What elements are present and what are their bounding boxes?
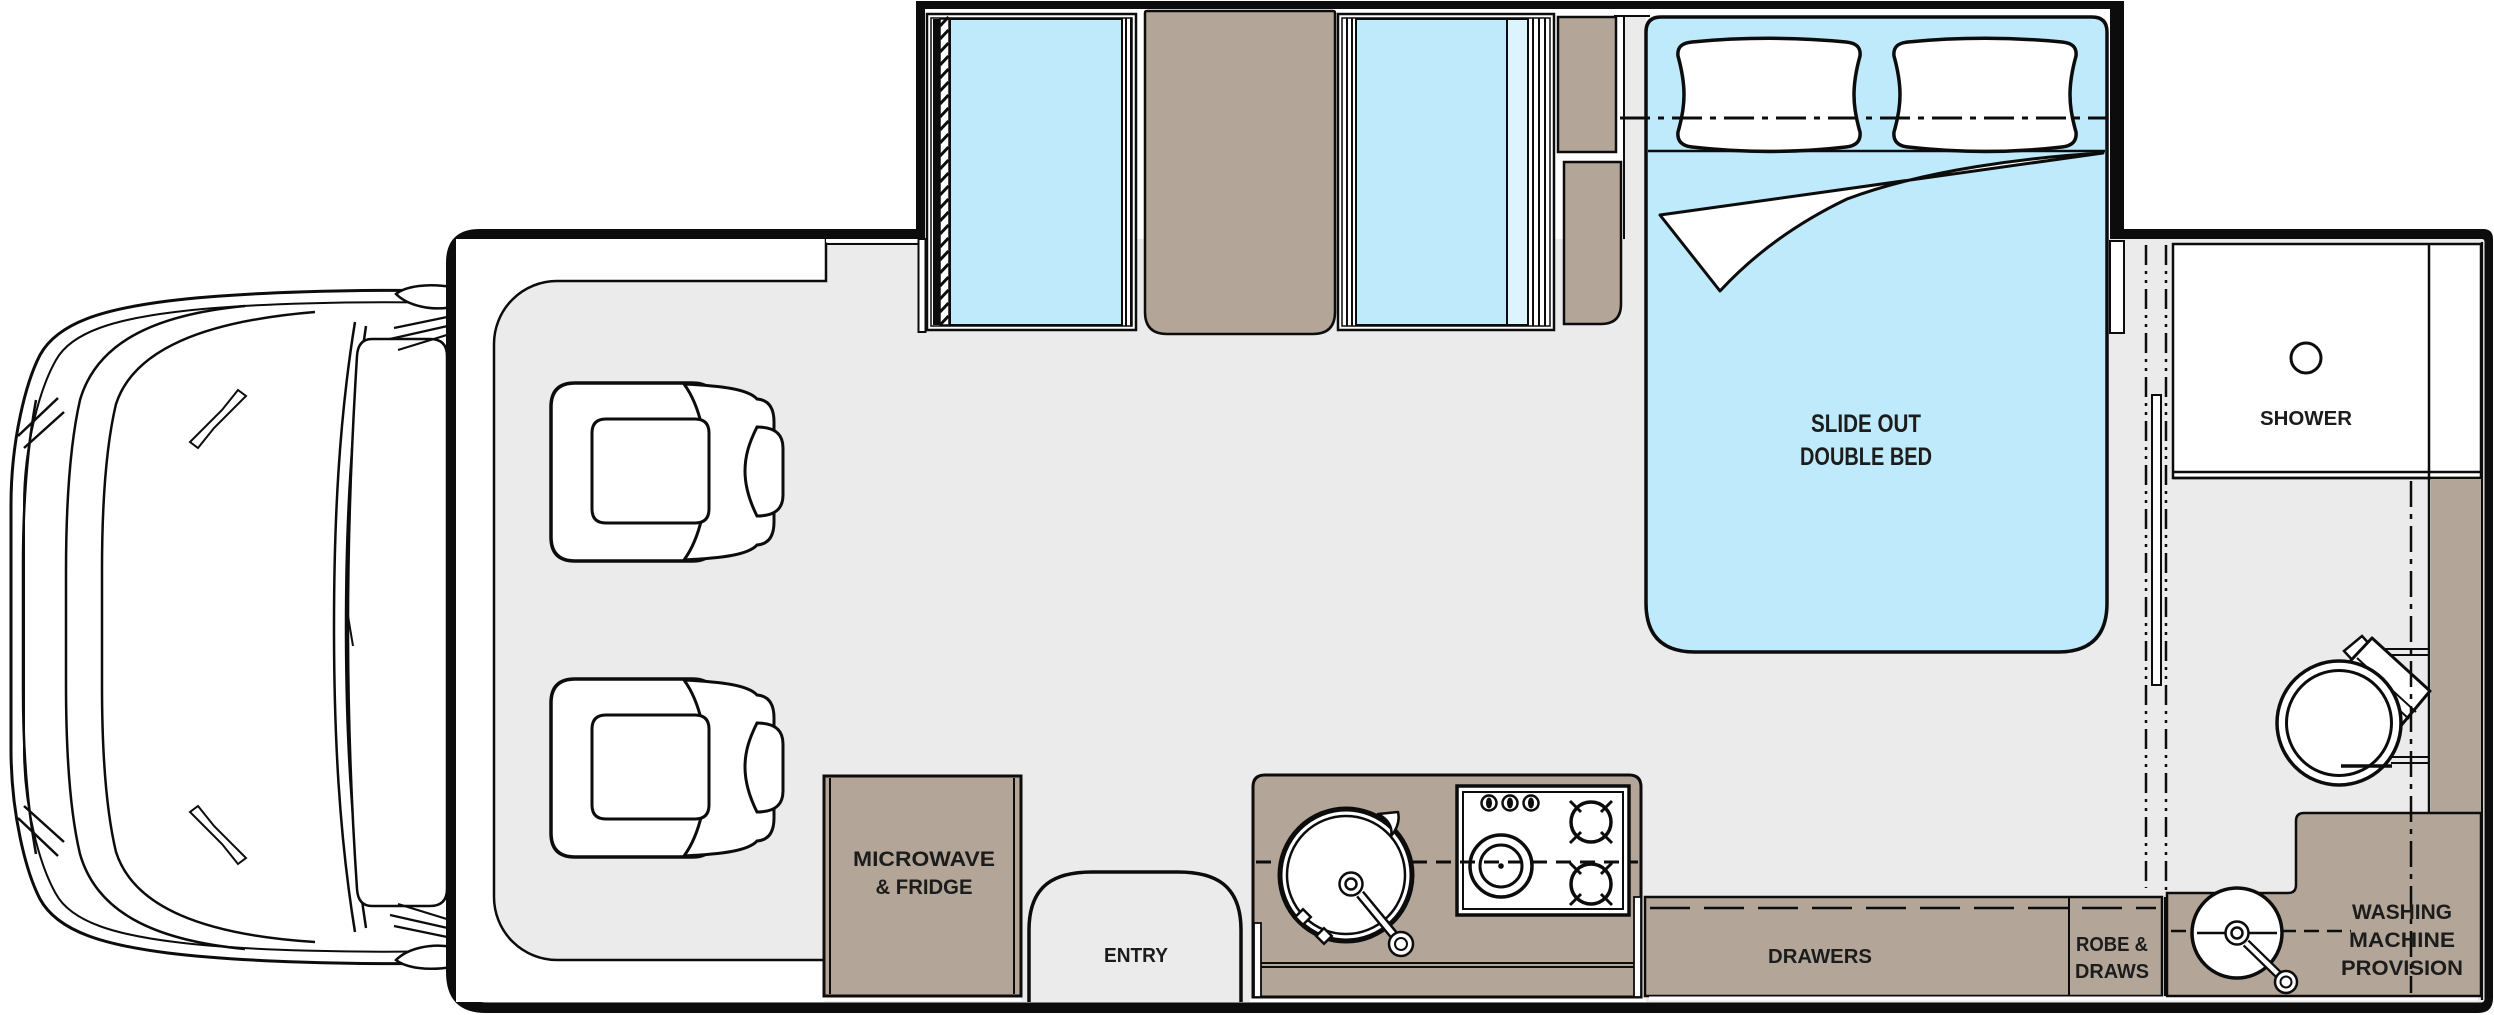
svg-text:WASHING: WASHING [2352, 901, 2452, 924]
svg-text:DRAWERS: DRAWERS [1768, 946, 1872, 968]
svg-text:MICROWAVE: MICROWAVE [853, 848, 995, 871]
svg-text:SHOWER: SHOWER [2260, 408, 2353, 430]
svg-text:DRAWS: DRAWS [2075, 961, 2149, 983]
svg-text:& FRIDGE: & FRIDGE [876, 876, 973, 899]
svg-text:DOUBLE BED: DOUBLE BED [1800, 443, 1932, 471]
svg-text:MACHINE: MACHINE [2349, 929, 2455, 952]
svg-text:SLIDE OUT: SLIDE OUT [1811, 410, 1921, 438]
svg-text:ROBE &: ROBE & [2076, 934, 2148, 956]
svg-text:ENTRY: ENTRY [1104, 945, 1169, 967]
svg-text:PROVISION: PROVISION [2341, 957, 2463, 980]
